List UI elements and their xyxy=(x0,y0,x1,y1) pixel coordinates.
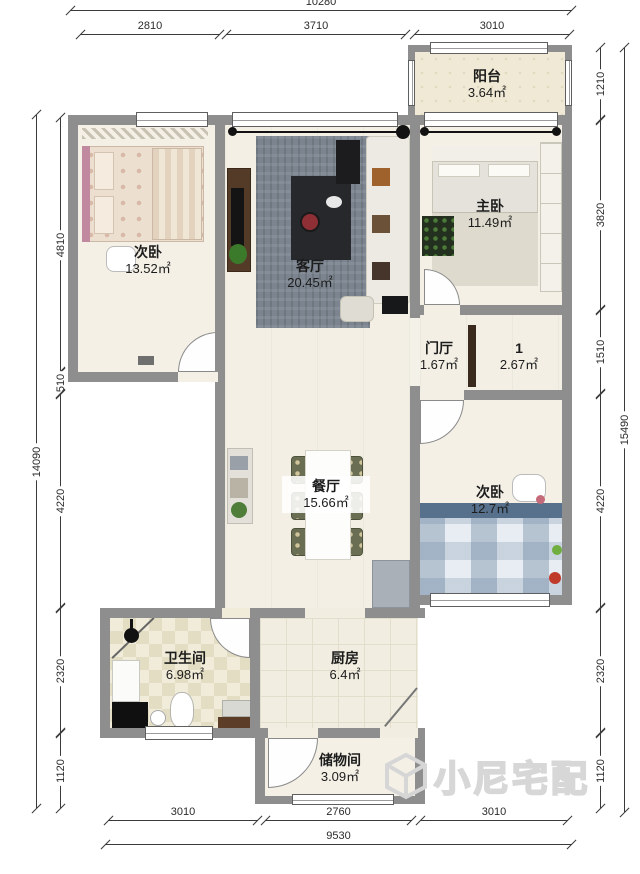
window xyxy=(408,60,415,106)
curtain xyxy=(82,128,208,139)
room-area: 3.09㎡ xyxy=(300,769,380,785)
dim-left-total: 14090 xyxy=(36,115,37,808)
dim-label: 9530 xyxy=(323,829,353,843)
door-opening xyxy=(222,608,250,618)
door-opening xyxy=(178,372,218,382)
room-label-master-bedroom: 主卧 11.49㎡ xyxy=(450,198,530,231)
table-decor xyxy=(326,196,342,208)
window xyxy=(430,42,548,54)
dim-bottom-seg3: 3010 xyxy=(420,820,568,821)
pillow xyxy=(438,164,480,177)
curtain-rod xyxy=(232,131,406,133)
room-label-storage: 储物间 3.09㎡ xyxy=(300,752,380,785)
curtain-rod-end xyxy=(396,125,410,139)
room-area: 1.67㎡ xyxy=(408,357,470,373)
dim-label: 3820 xyxy=(594,200,608,230)
dim-right-seg2: 3820 xyxy=(600,120,601,310)
sofa-pillow xyxy=(372,168,390,186)
pillow xyxy=(94,152,114,190)
dim-left-seg1: 4810 xyxy=(60,118,61,372)
dim-right-total: 15490 xyxy=(624,48,625,812)
dim-label: 1120 xyxy=(54,756,68,786)
dim-top-total: 10280 xyxy=(70,10,572,11)
plant xyxy=(231,502,247,518)
room-name: 主卧 xyxy=(450,198,530,215)
wall xyxy=(68,115,78,382)
dim-left-seg5: 1120 xyxy=(60,733,61,808)
curtain-rod-end xyxy=(228,127,237,136)
wall xyxy=(562,115,572,605)
window xyxy=(424,112,558,127)
floor-drain xyxy=(150,710,166,726)
shower-arm xyxy=(130,619,133,629)
window xyxy=(292,794,394,805)
fridge xyxy=(372,560,410,608)
dim-label: 4220 xyxy=(594,486,608,516)
slippers xyxy=(138,356,154,365)
dim-right-seg3: 1510 xyxy=(600,310,601,394)
sideboard-item xyxy=(230,456,248,470)
room-name: 储物间 xyxy=(300,752,380,769)
bed-blanket xyxy=(152,148,202,240)
toilet xyxy=(170,692,194,728)
pillow xyxy=(488,164,530,177)
room-name: 1 xyxy=(488,340,550,357)
room-label-living: 客厅 20.45㎡ xyxy=(268,258,352,291)
dim-label: 4220 xyxy=(54,486,68,516)
decor-green xyxy=(552,545,562,555)
curtain-rod-end xyxy=(420,127,429,136)
room-name: 卫生间 xyxy=(145,650,225,667)
room-area: 3.64㎡ xyxy=(447,85,527,101)
dim-label: 2320 xyxy=(54,655,68,685)
wall xyxy=(250,608,260,738)
door-opening xyxy=(305,608,365,618)
room-label-bathroom: 卫生间 6.98㎡ xyxy=(145,650,225,683)
room-area: 6.4㎡ xyxy=(305,667,385,683)
room-label-room1: 1 2.67㎡ xyxy=(488,340,550,373)
curtain-rod-end xyxy=(552,127,561,136)
dim-right-seg4: 4220 xyxy=(600,394,601,608)
room-area: 13.52㎡ xyxy=(108,261,188,277)
room-name: 餐厅 xyxy=(288,478,364,495)
wardrobe xyxy=(540,142,562,292)
door-opening xyxy=(424,305,460,315)
room-label-dining: 餐厅 15.66㎡ xyxy=(282,476,370,513)
dim-top-seg1: 2810 xyxy=(80,34,220,35)
dim-label: 3010 xyxy=(479,805,509,819)
dim-label: 15490 xyxy=(618,412,632,449)
room-name: 客厅 xyxy=(268,258,352,275)
window xyxy=(430,593,550,607)
room-area: 15.66㎡ xyxy=(288,495,364,511)
dim-bottom-seg2: 2760 xyxy=(265,820,412,821)
room-label-foyer: 门厅 1.67㎡ xyxy=(408,340,470,373)
dim-bottom-seg1: 3010 xyxy=(108,820,258,821)
dim-label: 4810 xyxy=(54,230,68,260)
dim-right-seg1: 1210 xyxy=(600,48,601,120)
dim-label: 2810 xyxy=(135,19,165,33)
floor-plan: 10280 2810 3710 3010 3010 2760 3010 9530… xyxy=(0,0,640,874)
room-name: 厨房 xyxy=(305,650,385,667)
dim-label: 3710 xyxy=(301,19,331,33)
dim-right-seg5: 2320 xyxy=(600,608,601,733)
decor-flower xyxy=(536,495,545,504)
dim-label: 3010 xyxy=(168,805,198,819)
dim-top-seg2: 3710 xyxy=(226,34,406,35)
room-label-bedroom-left: 次卧 13.52㎡ xyxy=(108,244,188,277)
room-name: 次卧 xyxy=(108,244,188,261)
wall xyxy=(255,738,265,804)
dim-label: 1210 xyxy=(594,69,608,99)
dim-label: 10280 xyxy=(303,0,340,9)
window xyxy=(565,60,572,106)
sofa-pillow xyxy=(372,215,390,233)
room-label-bedroom-right: 次卧 12.7㎡ xyxy=(450,484,530,517)
table-decor xyxy=(300,212,320,232)
wall xyxy=(100,608,110,738)
room-area: 6.98㎡ xyxy=(145,667,225,683)
dim-right-seg6: 1120 xyxy=(600,733,601,808)
door-opening xyxy=(268,728,318,738)
side-table xyxy=(336,140,360,184)
room-area: 12.7㎡ xyxy=(450,501,530,517)
room-area: 20.45㎡ xyxy=(268,275,352,291)
room-area: 11.49㎡ xyxy=(450,215,530,231)
room-area: 2.67㎡ xyxy=(488,357,550,373)
washing-machine xyxy=(112,702,148,728)
dim-top-seg3: 3010 xyxy=(414,34,570,35)
shower-head xyxy=(124,628,139,643)
bed-headboard xyxy=(432,146,538,162)
watermark-text: 小尼宅配 xyxy=(434,750,590,802)
dim-label: 3010 xyxy=(477,19,507,33)
room-name: 阳台 xyxy=(447,68,527,85)
dim-label: 1120 xyxy=(594,756,608,786)
watermark: 小尼宅配 xyxy=(384,750,590,802)
door-opening xyxy=(420,390,464,400)
sideboard-item xyxy=(230,478,248,498)
dim-label: 2320 xyxy=(594,655,608,685)
bed-headboard xyxy=(82,146,90,242)
cube-logo-icon xyxy=(384,752,428,800)
pillow xyxy=(94,196,114,234)
ottoman xyxy=(340,296,374,322)
room-name: 次卧 xyxy=(450,484,530,501)
window xyxy=(232,112,398,127)
tv xyxy=(231,188,244,246)
bath-counter xyxy=(112,660,140,702)
sofa-pillow xyxy=(372,262,390,280)
speaker xyxy=(382,296,408,314)
dim-label: 2760 xyxy=(323,805,353,819)
room-label-kitchen: 厨房 6.4㎡ xyxy=(305,650,385,683)
room-label-balcony: 阳台 3.64㎡ xyxy=(447,68,527,101)
plant xyxy=(229,244,247,264)
decor-red xyxy=(549,572,561,584)
door-opening xyxy=(380,728,418,738)
dim-label: 1510 xyxy=(594,337,608,367)
room-name: 门厅 xyxy=(408,340,470,357)
dim-left-seg3: 4220 xyxy=(60,394,61,608)
dim-label: 14090 xyxy=(30,443,44,480)
dim-left-seg4: 2320 xyxy=(60,608,61,733)
window xyxy=(136,112,208,127)
wall xyxy=(215,115,225,618)
window xyxy=(145,726,213,740)
curtain-rod xyxy=(424,131,558,133)
dim-bottom-total: 9530 xyxy=(105,844,572,845)
